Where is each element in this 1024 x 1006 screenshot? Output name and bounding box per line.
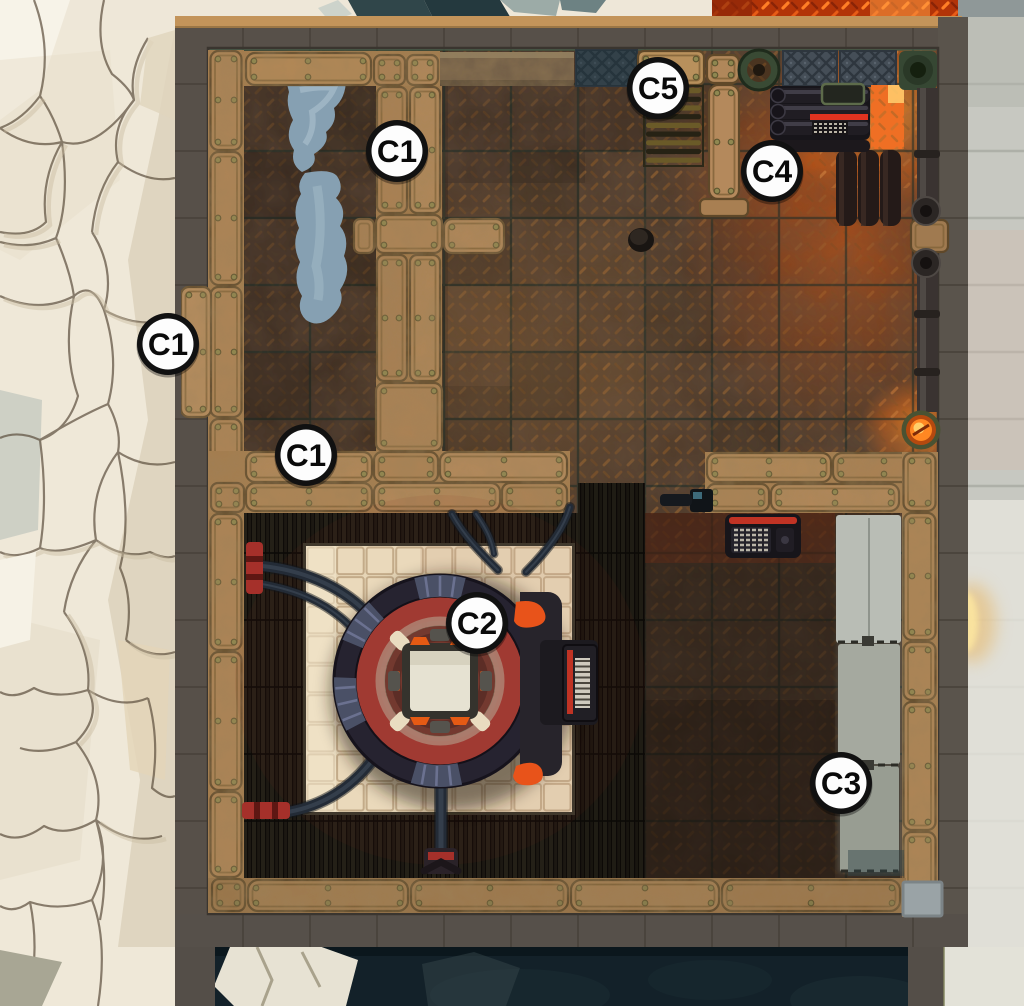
svg-text:C3: C3 [821,765,861,801]
svg-text:C1: C1 [286,437,326,473]
svg-text:C1: C1 [377,133,417,169]
svg-text:C4: C4 [752,153,793,189]
svg-text:C2: C2 [457,605,497,641]
svg-text:C5: C5 [638,70,678,106]
svg-text:C1: C1 [148,326,188,362]
